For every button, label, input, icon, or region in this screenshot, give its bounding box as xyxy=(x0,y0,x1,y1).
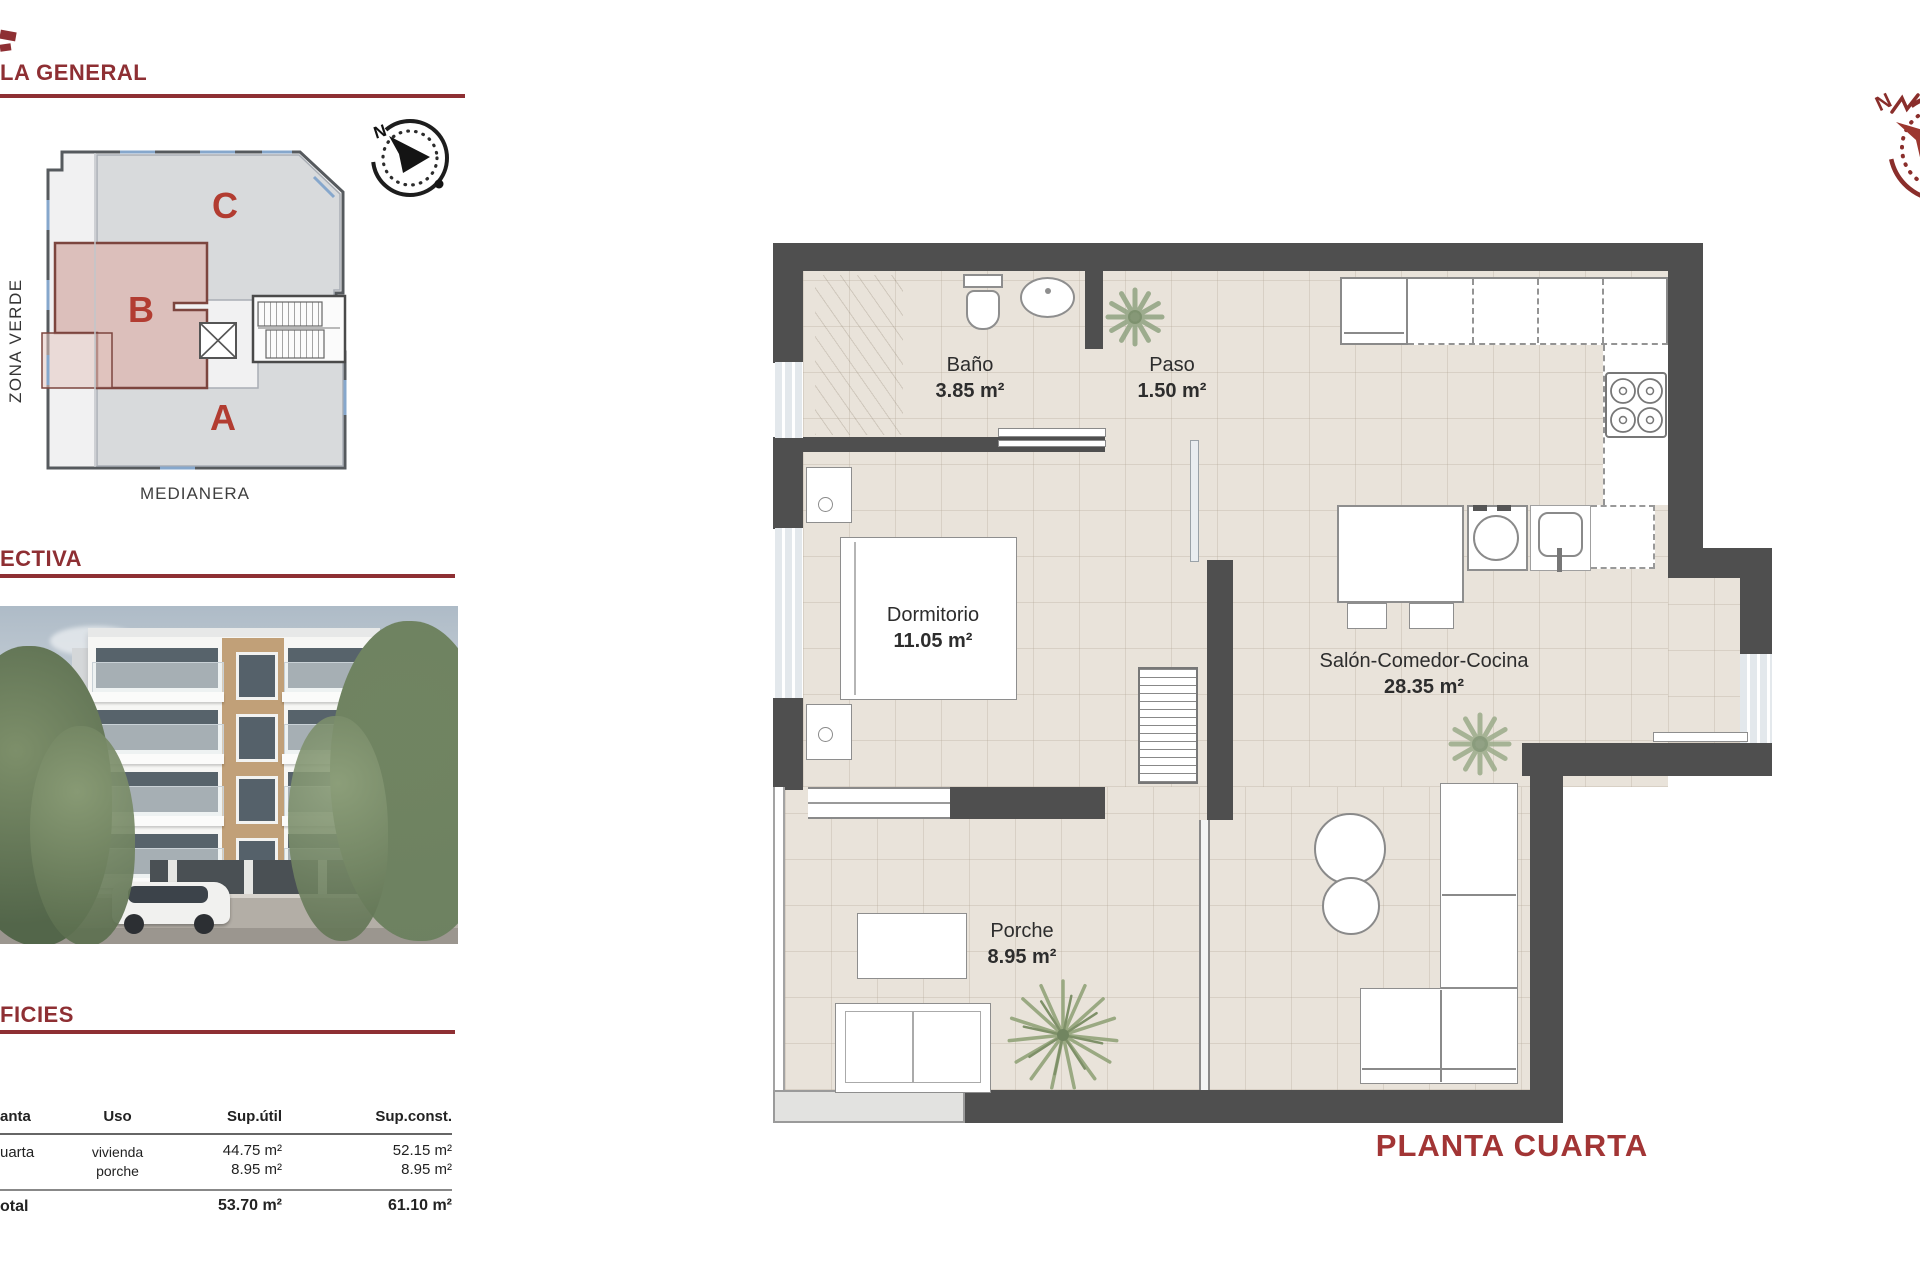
strip-window xyxy=(236,776,278,824)
table-cell-planta: uarta xyxy=(0,1144,60,1161)
nightstand xyxy=(806,467,852,523)
basin-drain xyxy=(1045,288,1051,294)
window xyxy=(775,362,803,438)
window xyxy=(808,787,950,819)
section-title-planta-general: LA GENERAL xyxy=(0,60,147,86)
washer-hinge xyxy=(1497,505,1511,511)
room-name: Baño xyxy=(936,352,1005,378)
table-total-const: 61.10 m² xyxy=(330,1197,452,1215)
car-wheel xyxy=(194,914,214,934)
sofa-cushion-line xyxy=(1442,894,1516,896)
building-roof xyxy=(88,628,380,637)
room-area: 8.95 m² xyxy=(988,944,1057,970)
plant-icon xyxy=(1445,709,1515,779)
toilet xyxy=(966,290,1000,330)
strip-window xyxy=(236,652,278,700)
compass-north-label: N xyxy=(371,121,389,143)
section-title-perspectiva: ECTIVA xyxy=(0,546,82,572)
hob xyxy=(1605,372,1667,438)
compass-icon: N xyxy=(363,112,458,207)
compass-icon: N xyxy=(1862,70,1920,230)
wall-segment xyxy=(773,243,1703,271)
unit-c-label: C xyxy=(212,185,238,226)
round-table xyxy=(1314,813,1386,885)
table-total-util: 53.70 m² xyxy=(160,1197,282,1215)
washer-hinge xyxy=(1473,505,1487,511)
cabinet-divider xyxy=(1472,279,1474,343)
wall-segment xyxy=(1668,548,1772,578)
wall-segment xyxy=(1668,243,1703,548)
sliding-door xyxy=(1190,440,1199,562)
sofa xyxy=(1440,783,1518,988)
table-cell-util1: 44.75 m² xyxy=(160,1142,282,1159)
sofa-edge-line xyxy=(1362,1068,1516,1070)
wall-segment xyxy=(1207,560,1233,820)
kitchen-island xyxy=(1337,505,1464,603)
room-area: 28.35 m² xyxy=(1320,674,1529,700)
counter-dashed xyxy=(1591,505,1655,569)
porch-step xyxy=(773,1090,965,1123)
room-name: Salón-Comedor-Cocina xyxy=(1320,648,1529,674)
module-line xyxy=(1344,332,1404,334)
stair-run xyxy=(258,302,322,326)
room-name: Dormitorio xyxy=(887,602,979,628)
balcony-slab xyxy=(90,692,224,702)
sliding-door xyxy=(998,440,1106,447)
glass-partition xyxy=(1199,820,1210,1090)
table-cell-util2: 8.95 m² xyxy=(160,1161,282,1178)
wall-segment xyxy=(773,437,803,529)
zona-verde-label: ZONA VERDE xyxy=(6,235,26,403)
unit-b-label: B xyxy=(128,289,154,330)
lamp xyxy=(818,727,833,742)
table-header-sup-const: Sup.const. xyxy=(330,1108,452,1125)
plan-sheet: LA GENERAL ECTIVA FICIES xyxy=(0,0,1920,1280)
porch-edge xyxy=(773,787,785,1090)
sofa-chaise xyxy=(1360,988,1518,1084)
palm-icon xyxy=(1003,975,1123,1095)
wall-segment xyxy=(773,243,803,363)
balcony-rail xyxy=(92,662,224,694)
porch-sofa-line xyxy=(912,1011,914,1083)
wall-segment xyxy=(1740,578,1772,654)
room-area: 11.05 m² xyxy=(887,628,979,654)
tap xyxy=(1557,548,1562,572)
section-rule xyxy=(0,94,465,98)
logo-fragment xyxy=(0,30,17,42)
table-cell-uso1: vivienda xyxy=(70,1144,165,1160)
building-render xyxy=(0,606,458,944)
shower-area xyxy=(815,275,903,435)
plant-icon xyxy=(1103,285,1167,349)
unit-b-annex xyxy=(42,333,112,388)
kitchen-module xyxy=(1340,277,1408,345)
room-area: 1.50 m² xyxy=(1138,378,1207,404)
stool xyxy=(1347,603,1387,629)
table-cell-const1: 52.15 m² xyxy=(330,1142,452,1159)
lamp xyxy=(818,497,833,512)
wall-segment xyxy=(1522,743,1772,776)
wall-segment xyxy=(1530,776,1563,1123)
stair-run xyxy=(266,330,324,358)
room-name: Porche xyxy=(988,918,1057,944)
strip-window xyxy=(236,714,278,762)
room-area: 3.85 m² xyxy=(936,378,1005,404)
section-rule xyxy=(0,574,455,578)
table-header-uso: Uso xyxy=(70,1108,165,1125)
washbasin xyxy=(1020,277,1075,318)
medianera-label: MEDIANERA xyxy=(95,484,295,504)
porch-table xyxy=(857,913,967,979)
car-wheel xyxy=(124,914,144,934)
table-cell-uso2: porche xyxy=(70,1163,165,1179)
round-table xyxy=(1322,877,1380,935)
room-label-paso: Paso 1.50 m² xyxy=(1138,352,1207,404)
window xyxy=(775,528,803,698)
section-title-superficies: FICIES xyxy=(0,1002,74,1028)
table-total-label: otal xyxy=(0,1198,70,1216)
toilet-tank xyxy=(963,274,1003,288)
table-header-planta: anta xyxy=(0,1108,60,1125)
wall-segment xyxy=(1085,271,1103,349)
bed-pillow-line xyxy=(854,542,856,695)
table-header-sup-util: Sup.útil xyxy=(160,1108,282,1125)
unit-a-label: A xyxy=(210,397,236,438)
sliding-door xyxy=(998,428,1106,437)
cabinet-divider xyxy=(1537,279,1539,343)
wardrobe xyxy=(1138,667,1198,784)
wall-segment xyxy=(950,787,1105,819)
room-label-dormitorio: Dormitorio 11.05 m² xyxy=(887,602,979,654)
table-rule xyxy=(0,1133,452,1135)
room-label-porche: Porche 8.95 m² xyxy=(988,918,1057,970)
wall-segment xyxy=(773,698,803,790)
logo-fragment xyxy=(0,43,11,51)
tree xyxy=(30,726,135,944)
table-rule xyxy=(0,1189,452,1191)
stool xyxy=(1409,603,1454,629)
window xyxy=(1740,654,1772,743)
table-cell-const2: 8.95 m² xyxy=(330,1161,452,1178)
plan-title: PLANTA CUARTA xyxy=(1312,1128,1712,1164)
section-rule xyxy=(0,1030,455,1034)
cabinet-divider xyxy=(1602,279,1604,343)
washer-drum xyxy=(1473,515,1519,561)
window-sill xyxy=(1653,732,1748,742)
room-name: Paso xyxy=(1138,352,1207,378)
room-label-salon: Salón-Comedor-Cocina 28.35 m² xyxy=(1320,648,1529,700)
room-label-bano: Baño 3.85 m² xyxy=(936,352,1005,404)
car-windows xyxy=(128,886,208,903)
floor-area-niche xyxy=(1668,578,1740,743)
